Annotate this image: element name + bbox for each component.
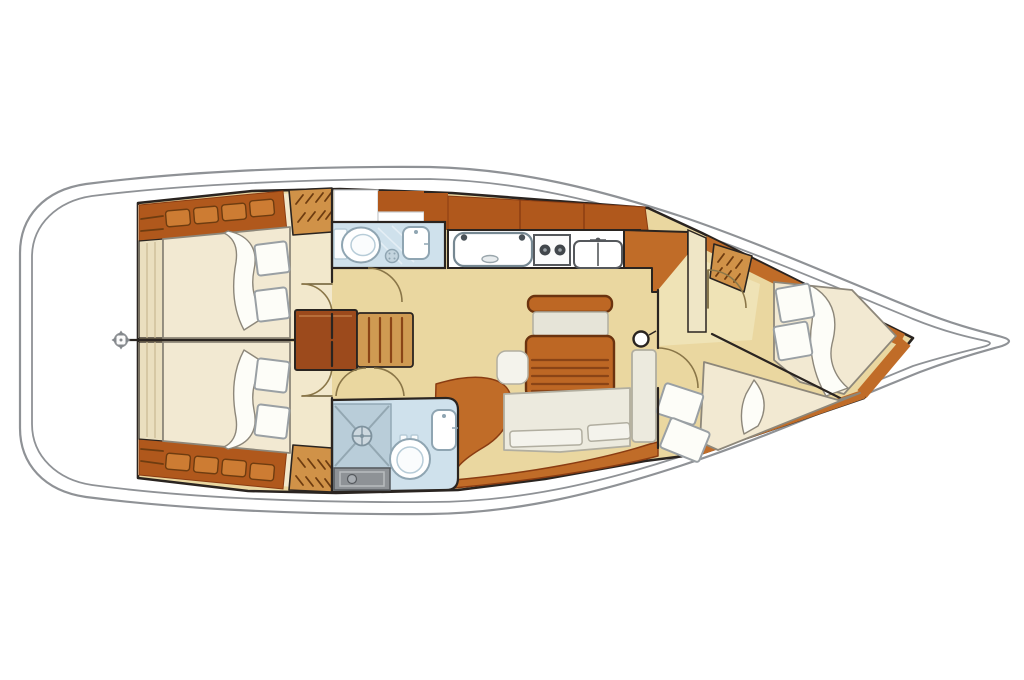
settee-back-cushion (632, 350, 656, 442)
saloon-table (526, 336, 614, 397)
chart-table (295, 310, 357, 370)
pillow (254, 287, 290, 322)
hanging-locker (289, 188, 332, 235)
toilet-icon (334, 228, 380, 263)
yacht-floor-plan (0, 0, 1024, 680)
sideboard-bench (528, 296, 612, 312)
locker-top (378, 191, 424, 212)
companionway-wall (688, 230, 706, 332)
washbasin-icon (403, 227, 430, 259)
settee-seat-front (587, 423, 630, 442)
pillow (775, 283, 814, 322)
stool (497, 351, 528, 384)
floor-plan-canvas (0, 0, 1024, 680)
bench-cushion (533, 312, 608, 336)
floor-grate-icon (334, 468, 390, 490)
icebox-icon (454, 233, 532, 266)
headboard-panels (139, 239, 163, 338)
settee-seat-front (510, 429, 583, 448)
washbasin-icon (432, 410, 458, 450)
vanity-counter (334, 190, 378, 226)
double-sink-icon (574, 238, 622, 268)
stove-icon (534, 235, 570, 265)
nav-seat (357, 313, 413, 367)
shower-stall-icon (333, 404, 391, 468)
pillow (254, 241, 290, 276)
pillow (773, 321, 812, 360)
shower-drain-icon (386, 250, 399, 263)
